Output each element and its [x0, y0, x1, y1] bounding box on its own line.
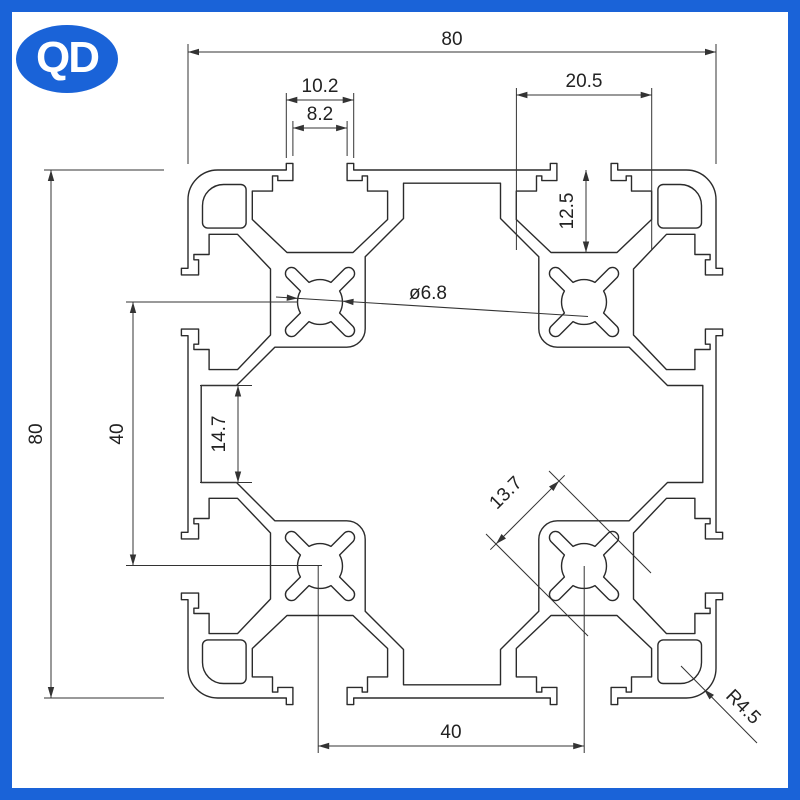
profile-geometry — [181, 163, 722, 704]
dimension-arrow — [573, 743, 584, 749]
dimension-arrow — [516, 92, 527, 98]
dim-overall-height: 80 — [26, 423, 47, 444]
center-cavity — [201, 183, 703, 685]
dimension-arrow — [287, 295, 298, 301]
dimension-arrow — [641, 92, 652, 98]
dimension-arrow — [48, 170, 54, 181]
corner-chamber — [658, 640, 702, 684]
boss-hole — [549, 267, 618, 336]
dim-corner-radius: R4.5 — [721, 685, 764, 728]
profile-drawing: 80 10.2 8.2 20.5 12.5 ø6.8 80 40 14.7 13… — [0, 0, 800, 800]
corner-chamber — [203, 640, 247, 684]
dimension-arrow — [235, 386, 241, 397]
dim-slot-depth: 12.5 — [557, 193, 578, 230]
dimension-labels: 80 10.2 8.2 20.5 12.5 ø6.8 80 40 14.7 13… — [26, 29, 765, 743]
dim-boss-spacing-vertical: 40 — [107, 423, 128, 444]
dim-side-pocket-height: 14.7 — [209, 416, 230, 453]
profile-outline — [181, 163, 722, 704]
dimension-arrow — [583, 170, 589, 181]
dimension-arrow — [235, 472, 241, 483]
dim-center-hole-diameter: ø6.8 — [409, 283, 447, 304]
dimension-arrow — [188, 49, 199, 55]
dimension-arrow — [48, 687, 54, 698]
dim-boss-spacing-horizontal: 40 — [440, 722, 461, 743]
dimension-arrow — [318, 743, 329, 749]
dimension-arrow — [130, 302, 136, 313]
dimension-arrow — [343, 299, 354, 305]
dimension-arrow — [705, 49, 716, 55]
dim-overall-width: 80 — [441, 29, 462, 50]
dimension-arrow — [286, 97, 297, 103]
dimension-arrow — [336, 125, 347, 131]
dim-slot-rim-width: 10.2 — [302, 76, 339, 97]
qd-logo: QD — [16, 25, 118, 93]
corner-chamber — [203, 185, 247, 229]
qd-logo-text: QD — [36, 33, 98, 83]
dimension-arrow — [343, 97, 354, 103]
dimension-arrow — [583, 242, 589, 253]
dim-slot-opening-width: 8.2 — [307, 104, 333, 125]
dim-slot-chamber-width: 20.5 — [566, 71, 603, 92]
corner-chamber — [658, 185, 702, 229]
dimension-arrow — [130, 555, 136, 566]
dimension-arrow — [293, 125, 304, 131]
dim-boss-block-diagonal: 13.7 — [486, 473, 527, 514]
